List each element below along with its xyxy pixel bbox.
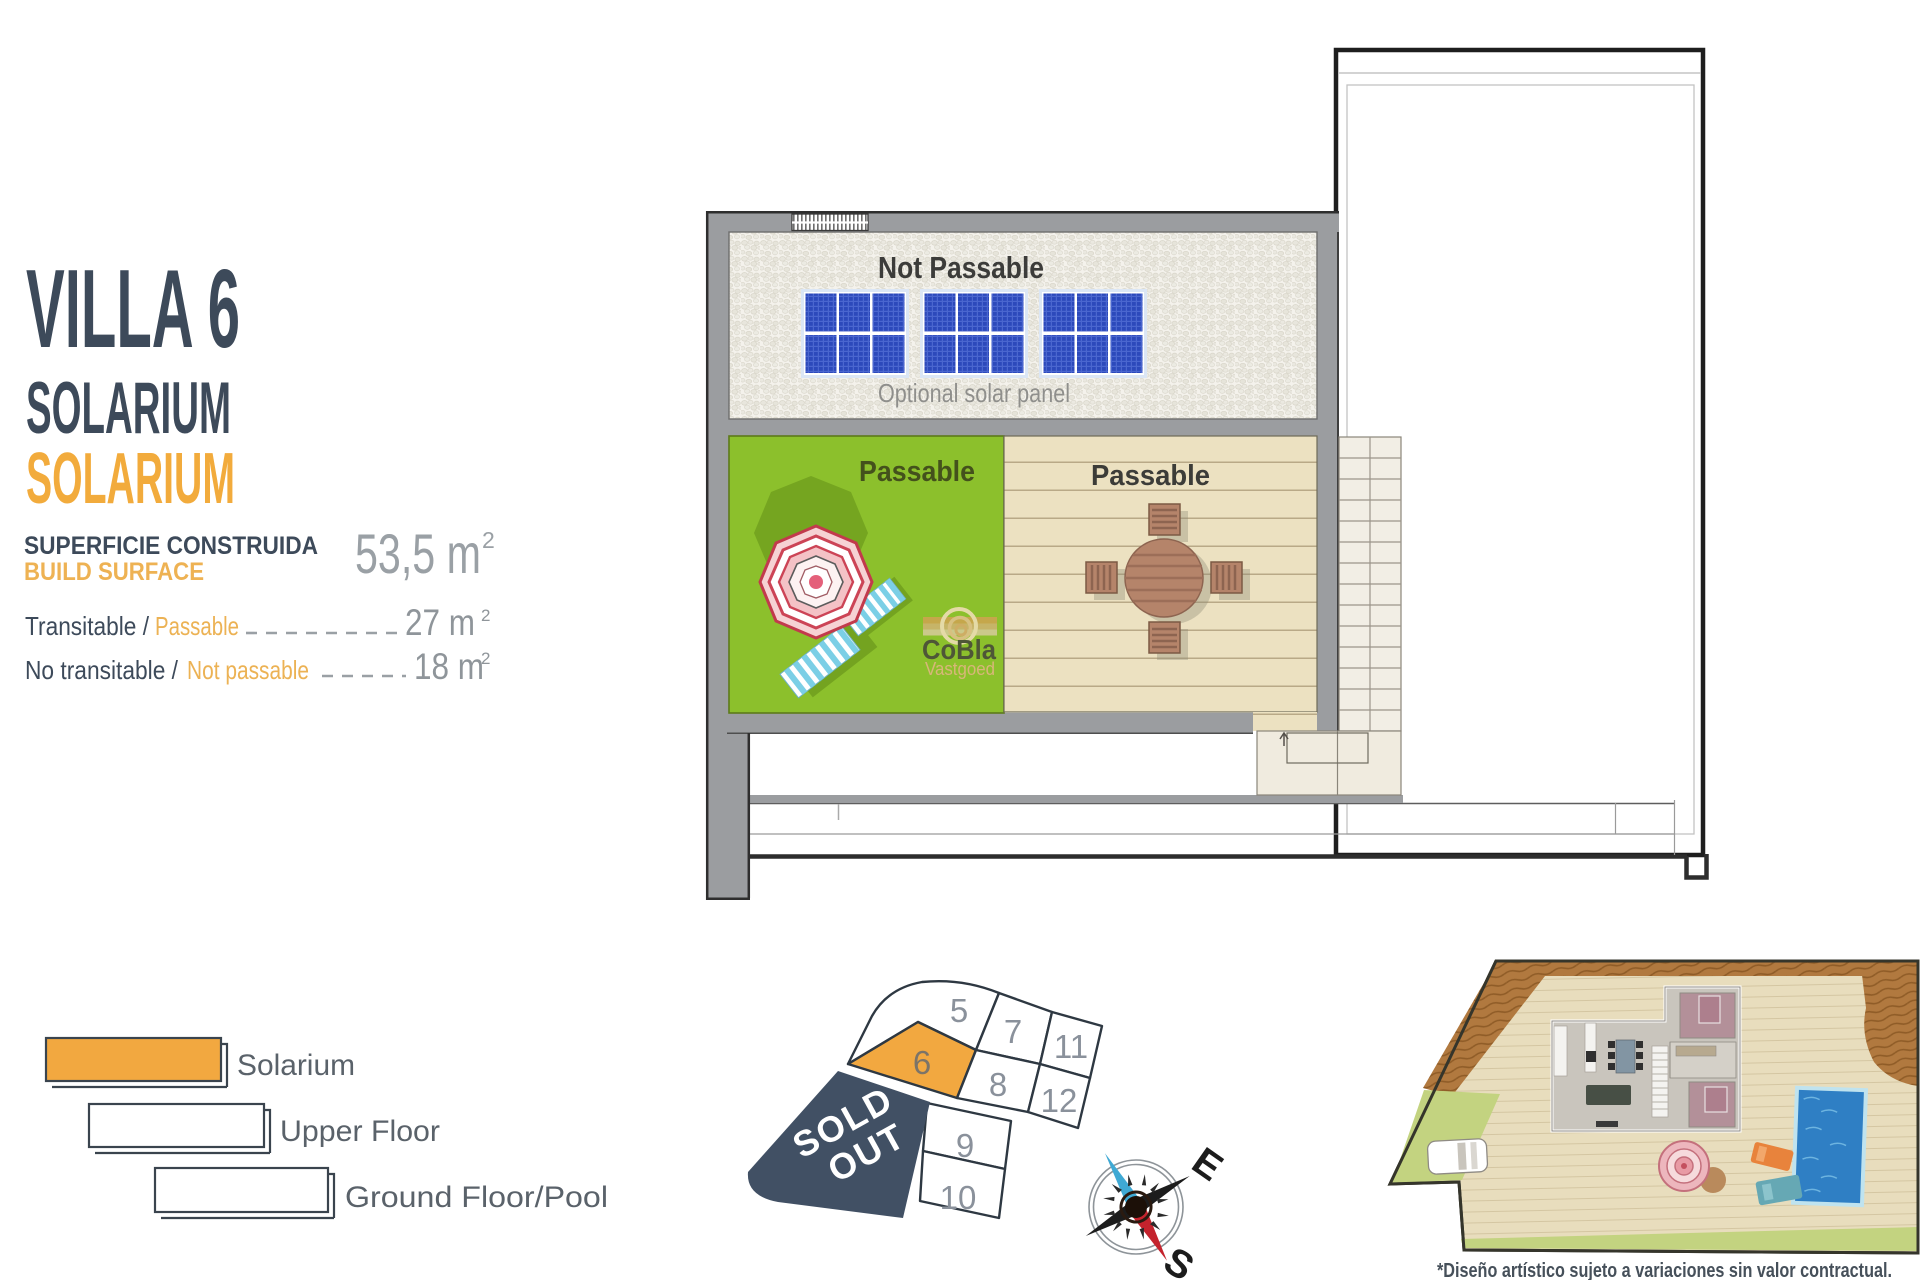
svg-text:E: E [1184, 1140, 1230, 1190]
svg-text:*Diseño artístico sujeto a var: *Diseño artístico sujeto a variaciones s… [1437, 1260, 1892, 1280]
svg-text:Ground Floor/Pool: Ground Floor/Pool [345, 1181, 608, 1214]
svg-text:Optional solar panel: Optional solar panel [878, 378, 1070, 408]
svg-text:Passable: Passable [859, 456, 975, 488]
svg-text:SOLARIUM: SOLARIUM [26, 368, 231, 449]
svg-text:11: 11 [1054, 1028, 1088, 1065]
svg-text:5: 5 [950, 992, 968, 1029]
svg-text:2: 2 [482, 527, 495, 553]
svg-text:VILLA 6: VILLA 6 [26, 247, 240, 371]
svg-text:18 m: 18 m [414, 646, 484, 687]
svg-text:Upper Floor: Upper Floor [280, 1115, 440, 1148]
svg-text:BUILD SURFACE: BUILD SURFACE [24, 558, 204, 586]
svg-text:Passable: Passable [1091, 460, 1210, 492]
svg-text:Not passable: Not passable [187, 655, 309, 685]
svg-text:Not Passable: Not Passable [878, 250, 1044, 285]
svg-text:SUPERFICIE CONSTRUIDA: SUPERFICIE CONSTRUIDA [24, 532, 318, 560]
svg-text:SOLARIUM: SOLARIUM [26, 439, 235, 519]
svg-text:7: 7 [1004, 1013, 1022, 1050]
svg-text:2: 2 [481, 649, 490, 668]
svg-text:Transitable /: Transitable / [25, 611, 150, 641]
svg-text:53,5 m: 53,5 m [355, 522, 481, 585]
svg-text:9: 9 [956, 1127, 974, 1164]
svg-text:27 m: 27 m [405, 602, 475, 643]
svg-text:8: 8 [989, 1066, 1007, 1103]
svg-text:Solarium: Solarium [237, 1049, 355, 1082]
svg-text:Vastgoed: Vastgoed [925, 659, 995, 679]
svg-text:Passable: Passable [155, 611, 239, 641]
svg-text:2: 2 [481, 606, 490, 625]
svg-text:No transitable /: No transitable / [25, 655, 179, 685]
svg-text:6: 6 [913, 1044, 931, 1081]
svg-text:10: 10 [940, 1179, 977, 1216]
svg-text:12: 12 [1041, 1082, 1078, 1119]
